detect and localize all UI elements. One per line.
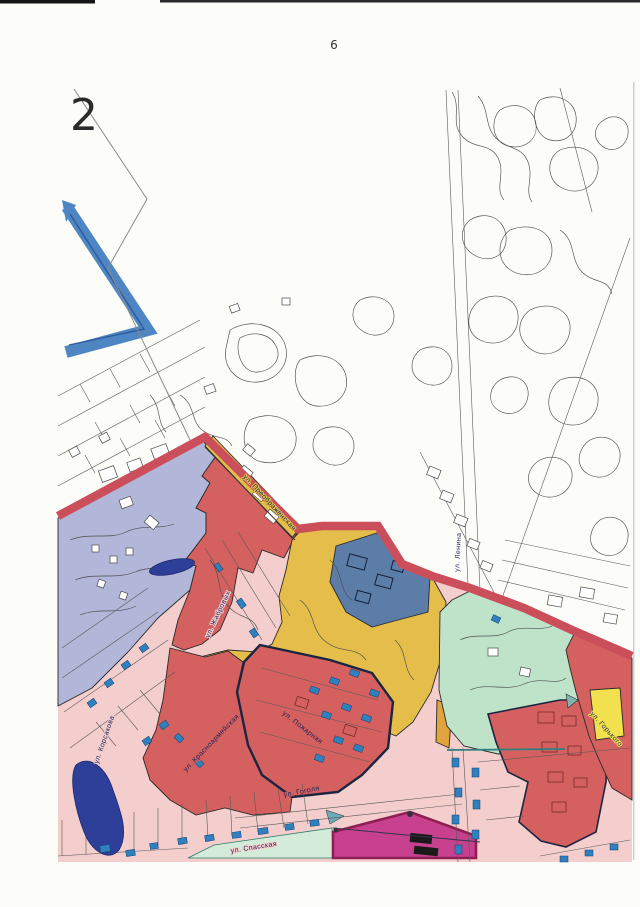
map-annotations: 2 [62,89,190,440]
leader-line [74,89,190,440]
road-lines [446,88,630,604]
street-label-lenina: ул. Ленина [454,532,463,572]
boundary-node-dot [407,811,413,817]
map-ref-number: 2 [70,90,98,141]
zoning-map: 2 ул. Преображенская ул. Ленина ул. Жабр… [0,0,640,907]
scanned-document-page: 6 [0,0,640,907]
